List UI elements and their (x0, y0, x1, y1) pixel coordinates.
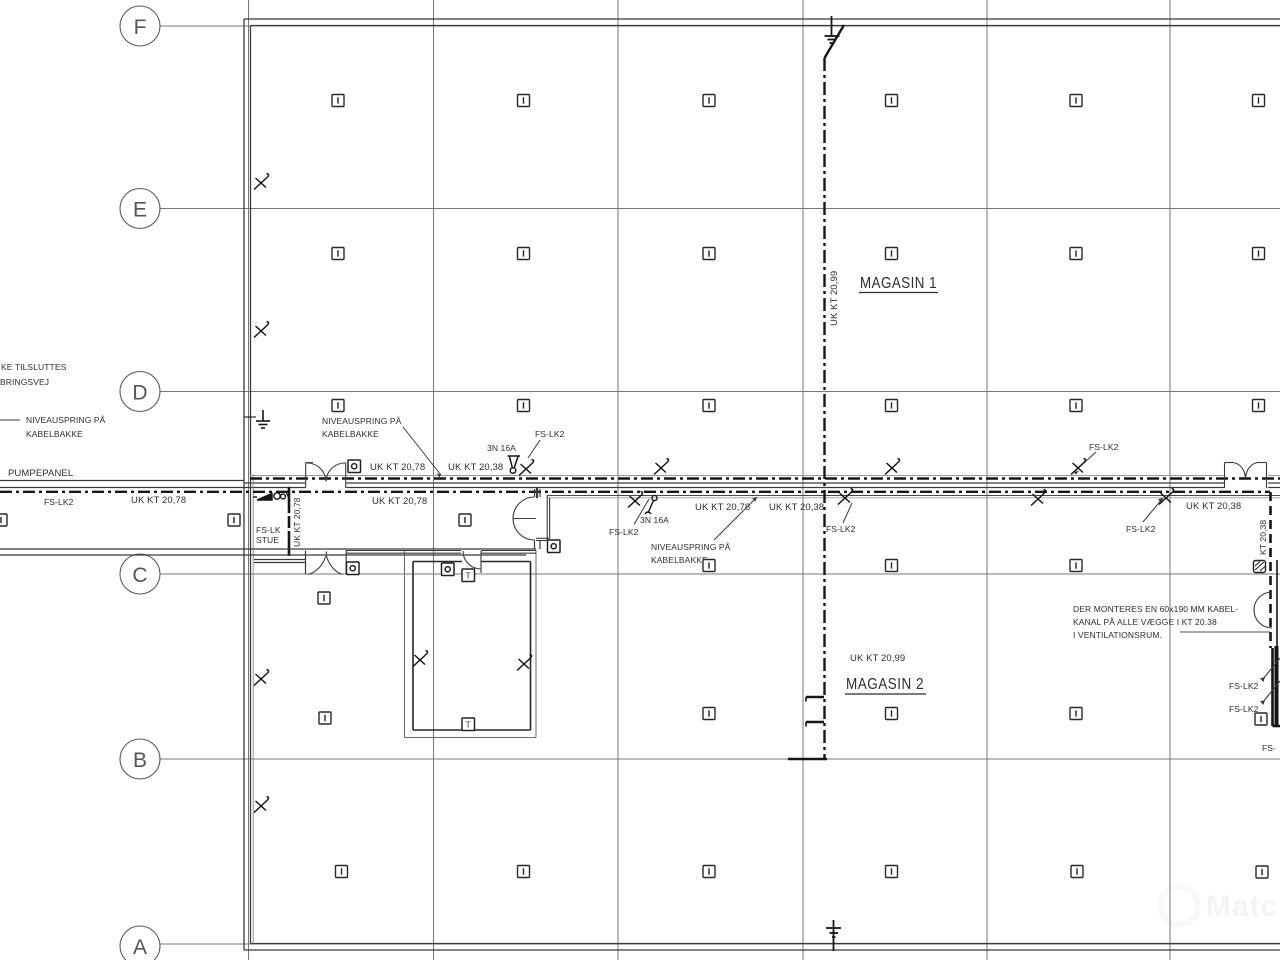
svg-text:I VENTILATIONSRUM.: I VENTILATIONSRUM. (1073, 630, 1162, 640)
svg-text:UK KT 20,99: UK KT 20,99 (850, 653, 905, 664)
svg-text:T: T (466, 571, 471, 581)
svg-text:3N 16A: 3N 16A (640, 515, 669, 525)
svg-text:BRINGSVEJ: BRINGSVEJ (0, 377, 49, 387)
svg-text:STUE: STUE (256, 535, 279, 545)
svg-text:KABELBAKKE: KABELBAKKE (26, 429, 83, 439)
svg-text:UK KT 20,78: UK KT 20,78 (131, 495, 186, 506)
svg-text:D: D (132, 382, 147, 405)
svg-text:FS-LK: FS-LK (256, 525, 281, 535)
svg-text:DER MONTERES EN 60x190 MM KABE: DER MONTERES EN 60x190 MM KABEL- (1073, 604, 1238, 614)
svg-text:FS-LK2: FS-LK2 (1089, 442, 1119, 452)
svg-text:FS-LK2: FS-LK2 (1126, 524, 1156, 534)
svg-text:B: B (133, 749, 147, 772)
svg-text:FS-: FS- (1262, 743, 1276, 753)
svg-text:UK KT 20,99: UK KT 20,99 (829, 271, 840, 326)
svg-text:UK KT 20,78: UK KT 20,78 (372, 496, 427, 507)
svg-text:UK KT 20,38: UK KT 20,38 (769, 502, 824, 513)
svg-text:KT 20,38: KT 20,38 (1258, 520, 1268, 555)
svg-text:UK KT 20,38: UK KT 20,38 (448, 462, 503, 473)
svg-text:FS-LK2: FS-LK2 (535, 429, 565, 439)
svg-text:NIVEAUSPRING PÅ: NIVEAUSPRING PÅ (322, 416, 402, 426)
svg-text:C: C (132, 564, 147, 587)
svg-text:T: T (466, 720, 471, 730)
svg-text:UK KT 20,78: UK KT 20,78 (370, 462, 425, 473)
svg-text:FS-LK2: FS-LK2 (44, 497, 74, 507)
svg-text:UK KT 20,38: UK KT 20,38 (1186, 501, 1241, 512)
svg-text:UK KT 20,78: UK KT 20,78 (292, 497, 302, 547)
svg-text:NIVEAUSPRING PÅ: NIVEAUSPRING PÅ (26, 415, 106, 425)
svg-text:KABELBAKKE: KABELBAKKE (651, 555, 708, 565)
svg-text:Match: Match (1206, 890, 1280, 923)
svg-text:MAGASIN 1: MAGASIN 1 (860, 275, 937, 292)
svg-text:FS-LK2: FS-LK2 (826, 524, 856, 534)
svg-text:FS-LK2: FS-LK2 (1229, 681, 1259, 691)
svg-text:MAGASIN 2: MAGASIN 2 (846, 676, 924, 693)
svg-text:E: E (133, 199, 147, 222)
svg-text:FS-LK2: FS-LK2 (1229, 704, 1259, 714)
svg-text:KE TILSLUTTES: KE TILSLUTTES (1, 362, 67, 372)
svg-text:PUMPEPANEL: PUMPEPANEL (8, 468, 73, 479)
svg-text:FS-LK2: FS-LK2 (609, 527, 639, 537)
svg-text:KABELBAKKE: KABELBAKKE (322, 429, 379, 439)
svg-text:F: F (134, 16, 147, 39)
svg-text:KANAL PÅ ALLE VÆGGE I KT 20.38: KANAL PÅ ALLE VÆGGE I KT 20.38 (1073, 617, 1217, 627)
svg-text:A: A (133, 936, 147, 959)
svg-text:3N 16A: 3N 16A (487, 443, 516, 453)
svg-text:NIVEAUSPRING PÅ: NIVEAUSPRING PÅ (651, 542, 731, 552)
